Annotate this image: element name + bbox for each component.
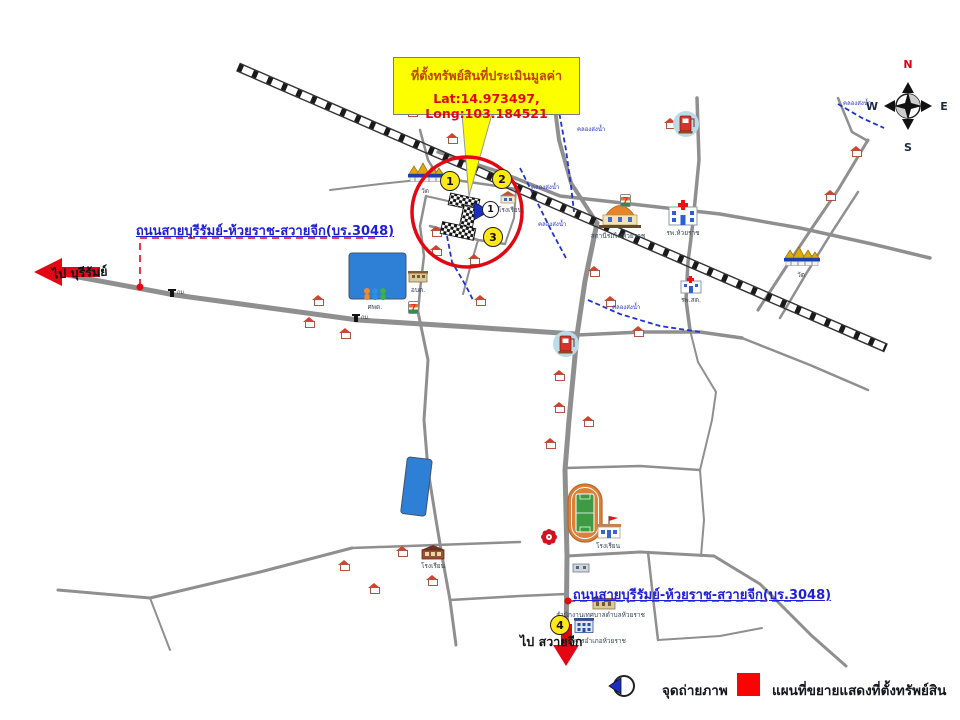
house-icon xyxy=(446,133,459,143)
road-label-west: ถนนสายบุรีรัมย์-ห้วยราช-สวายจีก(บร.3048) xyxy=(136,220,394,241)
school-circle-label: โรงเรียน xyxy=(498,205,522,215)
compass-north-label: N xyxy=(903,58,912,71)
stream-label: คลองส่งน้ำ xyxy=(612,302,640,312)
house-icon xyxy=(339,328,352,338)
house-icon xyxy=(468,122,481,132)
legend-photo-point-label: จุดถ่ายภาพ xyxy=(662,679,728,701)
seven-eleven-icon: 7 xyxy=(408,301,419,314)
gas-station-icon xyxy=(552,328,580,360)
house-icon xyxy=(553,402,566,412)
property-callout: ที่ตั้งทรัพย์สินที่ประเมินมูลค่า Lat:14.… xyxy=(393,57,580,115)
house-icon xyxy=(824,190,837,200)
temple-west-label: วัด xyxy=(421,186,429,196)
house-icon xyxy=(338,560,351,570)
marker-4: 4 xyxy=(550,615,570,635)
leader-lines xyxy=(140,238,806,601)
stream-label: คลองส่งน้ำ xyxy=(531,182,559,192)
km-post-icon xyxy=(354,314,358,322)
house-icon xyxy=(426,575,439,585)
compass-east-label: E xyxy=(940,100,948,113)
km-post-icon xyxy=(170,289,174,297)
callout-coordinates: Lat:14.973497, Long:103.184521 xyxy=(394,91,579,121)
direction-label-buriram: ไป บุรีรัมย์ xyxy=(52,262,108,285)
house-icon xyxy=(553,370,566,380)
school-icon xyxy=(499,190,517,204)
house-icon xyxy=(312,295,325,305)
stream-label: คลองส่งน้ำ xyxy=(538,219,566,229)
school-stadium-label: โรงเรียน xyxy=(596,541,620,551)
municipal-office-label: สำนักงานเทศบาลตำบลห้วยราช xyxy=(556,610,645,620)
legend-property-label: แผนที่ขยายแสดงที่ตั้งทรัพย์สิน xyxy=(772,679,946,701)
house-icon xyxy=(430,226,443,236)
compass-west-label: W xyxy=(866,100,878,113)
location-dot xyxy=(565,598,572,605)
house-icon xyxy=(850,146,863,156)
house-icon xyxy=(588,266,601,276)
kindergarten-label: ศพด. xyxy=(368,302,383,312)
house-icon xyxy=(303,317,316,327)
compass-rose-icon xyxy=(878,76,938,136)
property-plots xyxy=(440,193,480,240)
house-icon xyxy=(544,438,557,448)
road-network xyxy=(46,93,930,666)
legend-property-swatch xyxy=(737,673,760,696)
school-south-label: โรงเรียน xyxy=(421,561,445,571)
house-icon xyxy=(582,416,595,426)
marker-3: 3 xyxy=(483,227,503,247)
callout-title: ที่ตั้งทรัพย์สินที่ประเมินมูลค่า xyxy=(394,66,579,86)
map-canvas: กม. กม. วัด วัด xyxy=(0,0,960,720)
health-center-label: รพ.สต. xyxy=(681,295,701,305)
compass-south-label: S xyxy=(904,141,912,154)
direction-label-sawai-chik: ไป สวายจีก xyxy=(520,632,582,652)
subdistrict-office-icon xyxy=(408,270,428,283)
road-label-south: ถนนสายบุรีรัมย์-ห้วยราช-สวายจีก(บร.3048) xyxy=(573,584,831,605)
house-icon xyxy=(368,583,381,593)
photo-point-marker: 1 xyxy=(482,201,499,218)
house-icon xyxy=(396,546,409,556)
school-icon xyxy=(594,514,624,540)
pond xyxy=(401,457,433,517)
house-icon xyxy=(430,245,443,255)
gas-station-icon xyxy=(672,108,700,140)
photo-point-legend-icon xyxy=(605,672,639,702)
house-icon xyxy=(474,295,487,305)
subdistrict-office-label: อบต. xyxy=(411,285,425,295)
temple-icon xyxy=(782,246,822,266)
hospital-icon xyxy=(668,200,698,226)
building-icon xyxy=(572,562,590,573)
health-center-icon xyxy=(680,276,702,294)
stream-lines xyxy=(447,104,884,332)
hospital-label: รพ.ห้วยราช xyxy=(666,228,699,238)
house-icon xyxy=(468,254,481,264)
km-post-label: กม. xyxy=(177,289,186,297)
seven-eleven-icon: 7 xyxy=(620,194,631,207)
temple-east-label: วัด xyxy=(797,270,805,280)
house-icon xyxy=(632,326,645,336)
km-post-label: กม. xyxy=(361,314,370,322)
district-seal-icon xyxy=(543,531,555,543)
stream-label: คลองส่งน้ำ xyxy=(577,124,605,134)
kindergarten-icon xyxy=(362,287,388,301)
train-station-label: สถานีรถไฟห้วยราช xyxy=(591,231,646,241)
marker-2: 2 xyxy=(492,169,512,189)
location-dot xyxy=(137,284,144,291)
school-icon xyxy=(420,544,446,560)
marker-1: 1 xyxy=(440,171,460,191)
